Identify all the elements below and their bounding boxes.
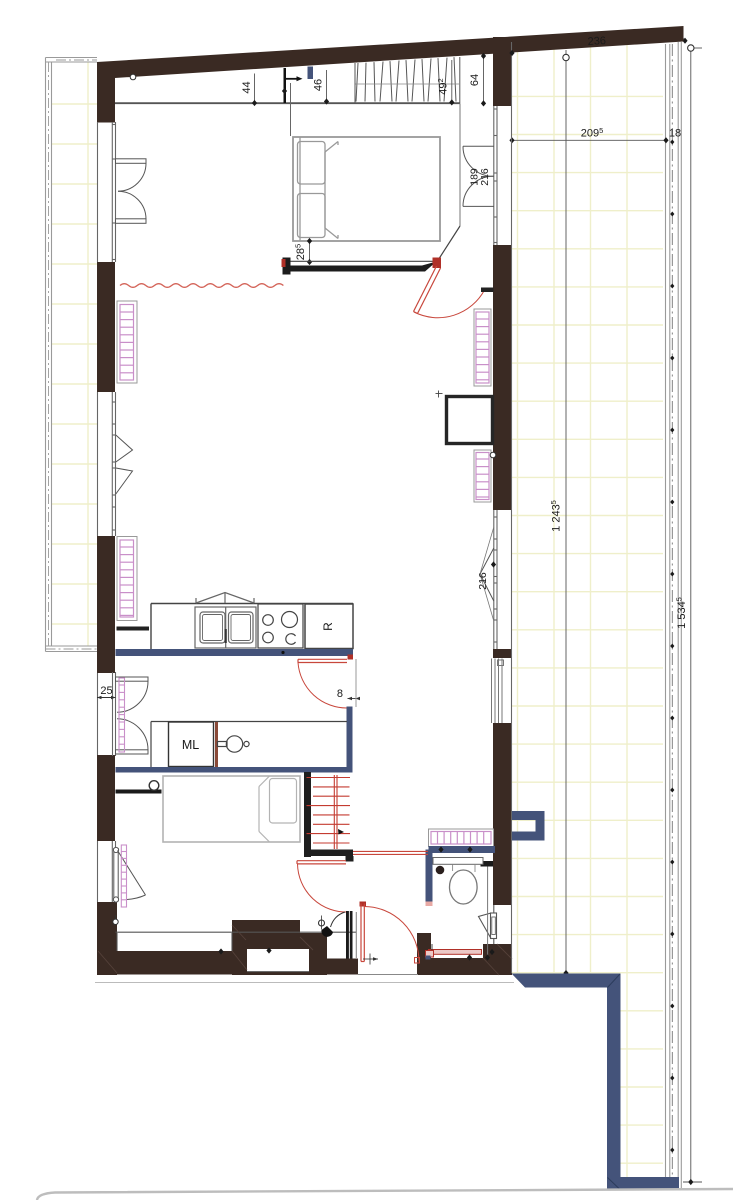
- svg-text:1 5345: 1 5345: [675, 597, 689, 629]
- svg-text:18: 18: [669, 128, 681, 140]
- svg-text:8: 8: [337, 688, 343, 700]
- svg-text:ML: ML: [182, 738, 199, 752]
- svg-text:46: 46: [313, 79, 325, 91]
- svg-text:R: R: [321, 622, 335, 631]
- svg-text:216: 216: [477, 572, 489, 590]
- svg-text:25: 25: [100, 685, 112, 697]
- svg-text:236: 236: [587, 35, 606, 48]
- svg-text:64: 64: [469, 74, 481, 86]
- svg-text:216: 216: [479, 168, 491, 186]
- svg-text:1 2435: 1 2435: [549, 500, 563, 532]
- svg-text:44: 44: [241, 81, 253, 93]
